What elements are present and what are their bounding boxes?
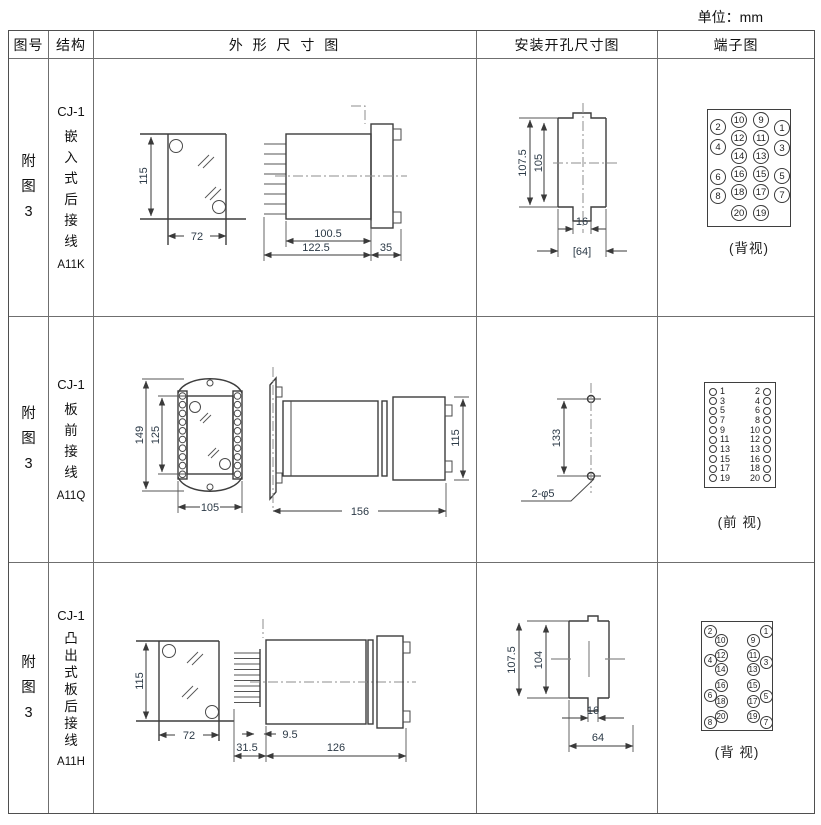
terminal-pin: 7 (774, 187, 790, 203)
dim-label-front-height: 115 (134, 672, 146, 690)
terminal-pin (709, 416, 717, 424)
tab (403, 711, 410, 722)
terminal-pin: 9 (747, 634, 760, 647)
pin-number: 5 (717, 406, 740, 415)
terminal-pin: 17 (753, 184, 769, 200)
dimensions-r1-outline: 115 72 100.5 122.5 35 (138, 137, 401, 261)
terminal-pin: 18 (731, 184, 747, 200)
model-code-r1: A11K (57, 259, 84, 271)
outline-cell-r3: 115 72 9.5 31.5 126 (94, 563, 477, 813)
terminal-pin (763, 397, 771, 405)
terminal-pin (763, 436, 771, 444)
dim-label-front-width: 72 (183, 730, 195, 742)
dim-label-rear-height: 115 (450, 429, 462, 447)
model-code-r2: A11Q (57, 490, 86, 502)
terminal-pin (709, 455, 717, 463)
side-view (264, 106, 407, 228)
mounting-cell-r2: 133 2-φ5 (477, 317, 658, 563)
header-outline: 外 形 尺 寸 图 (94, 31, 477, 59)
dim-label-body-length: 100.5 (314, 228, 342, 240)
screw-hole (213, 201, 226, 214)
dim-label-inner-height: 104 (533, 651, 545, 669)
terminal-pin (709, 388, 717, 396)
mounting-drawing-r2: 133 2-φ5 (477, 317, 657, 562)
glass-hatch (200, 413, 219, 458)
dimensions-r2-outline: 149 125 105 115 156 (134, 379, 469, 518)
dim-label-cutout-width: 64 (592, 732, 604, 744)
tab (403, 642, 410, 653)
terminal-pin: 16 (715, 679, 728, 692)
terminal-caption-r3: (背 视) (701, 741, 773, 761)
unit-label: 单位：mm (698, 7, 763, 27)
terminal-pin: 15 (753, 166, 769, 182)
terminal-box-r3: 2 4 6 8 10 12 14 16 18 20 9 11 13 15 17 … (701, 621, 773, 731)
terminal-row: 910 (709, 426, 771, 435)
terminal-pin: 7 (760, 716, 773, 729)
terminal-row: 78 (709, 416, 771, 425)
terminal-pin: 3 (760, 656, 773, 669)
terminal-row: 1920 (709, 474, 771, 483)
dimensions-r3-outline: 115 72 9.5 31.5 126 (134, 643, 406, 762)
mounting-cell-r1: 107.5 105 16 [64] (477, 59, 658, 317)
terminal-pin (763, 407, 771, 415)
terminal-pin: 2 (704, 625, 717, 638)
model-name-r3: CJ-1 (57, 608, 84, 623)
relay-face (187, 396, 233, 474)
terminal-pin: 1 (774, 120, 790, 136)
mounting-drawing-r1: 107.5 105 16 [64] (477, 59, 657, 316)
structure-cell-r1: CJ-1 嵌 入 式 后 接 线 A11K (49, 59, 94, 317)
dim-label-outer-height: 107.5 (506, 646, 518, 674)
outline-cell-r1: 115 72 100.5 122.5 35 (94, 59, 477, 317)
pin-number: 6 (740, 406, 763, 415)
dim-label-cutout-width: [64] (573, 246, 591, 258)
terminal-pin: 4 (710, 139, 726, 155)
dim-label-total-length: 156 (351, 506, 369, 518)
structure-cell-r3: CJ-1 凸 出 式 板 后 接 线 A11H (49, 563, 94, 813)
pin-number: 16 (740, 455, 763, 464)
model-code-r3: A11H (57, 756, 85, 768)
terminal-pin: 1 (760, 625, 773, 638)
pin-number: 12 (740, 435, 763, 444)
terminal-pin: 13 (753, 148, 769, 164)
mount-hole (207, 380, 213, 386)
dim-label-front-width: 105 (201, 502, 219, 514)
terminal-caption-r1: (背视) (707, 237, 791, 257)
tab (445, 461, 452, 472)
centerline (275, 106, 407, 176)
terminal-row: 56 (709, 406, 771, 415)
structure-text-r3: 凸 出 式 板 后 接 线 (64, 630, 78, 749)
terminal-pin (763, 416, 771, 424)
terminal-box-r1: 2 4 6 8 10 12 14 16 18 20 9 11 13 15 17 … (707, 109, 791, 227)
header-fig-no: 图号 (9, 31, 49, 59)
pin-number: 13 (717, 445, 740, 454)
terminal-pin: 16 (731, 166, 747, 182)
dimensions-r2-mounting: 133 2-φ5 (521, 399, 594, 501)
terminal-screws (179, 393, 241, 478)
dim-label-hole-distance: 133 (551, 429, 563, 447)
terminal-pin: 19 (747, 710, 760, 723)
tab (445, 405, 452, 416)
dim-label-slot-width: 16 (576, 216, 588, 228)
terminal-row: 1112 (709, 435, 771, 444)
rear-cover (393, 397, 445, 480)
datasheet-page: 单位：mm 图号 结构 外 形 尺 寸 图 安装开孔尺寸图 端子图 附 图 3 … (0, 0, 821, 825)
dim-label-inner-height: 125 (150, 426, 162, 444)
terminal-pin: 14 (715, 663, 728, 676)
terminal-pin: 14 (731, 148, 747, 164)
terminal-pin (763, 455, 771, 463)
pin-number: 3 (717, 397, 740, 406)
glass-hatch (198, 155, 221, 200)
terminal-pin: 12 (715, 649, 728, 662)
terminal-cell-r3: 2 4 6 8 10 12 14 16 18 20 9 11 13 15 17 … (658, 563, 814, 813)
pin-number: 18 (740, 464, 763, 473)
terminal-pin (763, 426, 771, 434)
mounting-cell-r3: 107.5 104 16 64 (477, 563, 658, 813)
centerline (553, 103, 617, 233)
fig-no-r2: 附 图 3 (21, 402, 36, 477)
terminal-pin: 10 (715, 634, 728, 647)
terminal-pins (234, 653, 260, 703)
terminal-pin: 20 (715, 710, 728, 723)
terminal-box-r2: 12 34 56 78 910 1112 1313 1516 1718 1920 (704, 382, 776, 488)
terminal-pin (763, 465, 771, 473)
structure-text-r2: 板 前 接 线 (64, 399, 78, 483)
terminal-pins (264, 144, 286, 214)
dim-label-front-height: 115 (138, 167, 150, 185)
dim-label-front-width: 72 (191, 231, 203, 243)
terminal-row: 1313 (709, 445, 771, 454)
terminal-pin (709, 474, 717, 482)
terminal-pin: 12 (731, 130, 747, 146)
terminal-cell-r2: 12 34 56 78 910 1112 1313 1516 1718 1920… (658, 317, 814, 563)
tab (393, 212, 401, 223)
dim-label-slot-width: 16 (587, 705, 599, 717)
screw-hole (220, 459, 231, 470)
terminal-pin: 11 (747, 649, 760, 662)
screw-hole (170, 140, 183, 153)
dim-label-pins-length: 31.5 (236, 742, 257, 754)
front-view (136, 641, 234, 741)
terminal-pin (709, 436, 717, 444)
terminal-pin (763, 445, 771, 453)
terminal-pin: 2 (710, 119, 726, 135)
side-view (270, 367, 452, 509)
dim-label-total-length: 122.5 (302, 242, 330, 254)
outline-drawing-r2: 149 125 105 115 156 (94, 317, 476, 562)
pin-number: 7 (717, 416, 740, 425)
dimension-table: 图号 结构 外 形 尺 寸 图 安装开孔尺寸图 端子图 附 图 3 CJ-1 嵌… (8, 30, 815, 814)
terminal-pin: 10 (731, 112, 747, 128)
terminal-row: 12 (709, 387, 771, 396)
terminal-pin (709, 465, 717, 473)
structure-text-r1: 嵌 入 式 后 接 线 (64, 126, 78, 252)
terminal-pin: 13 (747, 663, 760, 676)
pin-number: 9 (717, 426, 740, 435)
dim-label-outer-height: 149 (134, 426, 146, 444)
centerline (250, 619, 416, 682)
tab (393, 129, 401, 140)
terminal-pin: 19 (753, 205, 769, 221)
pin-number: 17 (717, 464, 740, 473)
header-mounting: 安装开孔尺寸图 (477, 31, 658, 59)
structure-cell-r2: CJ-1 板 前 接 线 A11Q (49, 317, 94, 563)
terminal-caption-r2: (前 视) (704, 511, 776, 531)
terminal-pin: 8 (710, 188, 726, 204)
terminal-pin: 9 (753, 112, 769, 128)
pin-number: 10 (740, 426, 763, 435)
pin-number: 1 (717, 387, 740, 396)
outline-drawing-r1: 115 72 100.5 122.5 35 (94, 59, 476, 316)
terminal-pin: 17 (747, 695, 760, 708)
glass-hatch (182, 652, 203, 699)
screw-hole (190, 402, 201, 413)
terminal-pin: 18 (715, 695, 728, 708)
pin-number: 13 (740, 445, 763, 454)
terminal-pin: 5 (760, 690, 773, 703)
mount-hole (207, 484, 213, 490)
terminal-pin (709, 426, 717, 434)
pin-number: 2 (740, 387, 763, 396)
front-view (178, 379, 242, 492)
pin-number: 15 (717, 455, 740, 464)
dim-label-holes: 2-φ5 (531, 488, 554, 500)
dim-label-gap: 9.5 (282, 729, 297, 741)
fig-no-cell-r1: 附 图 3 (9, 59, 49, 317)
outline-drawing-r3: 115 72 9.5 31.5 126 (94, 563, 476, 812)
terminal-pin: 15 (747, 679, 760, 692)
terminal-pin: 5 (774, 168, 790, 184)
header-terminal: 端子图 (658, 31, 814, 59)
outline-cell-r2: 149 125 105 115 156 (94, 317, 477, 563)
screw-hole (163, 645, 176, 658)
dimensions-r1-mounting: 107.5 105 16 [64] (517, 120, 627, 258)
fig-no-cell-r2: 附 图 3 (9, 317, 49, 563)
pin-number: 8 (740, 416, 763, 425)
side-view (234, 619, 416, 728)
terminal-pin: 6 (710, 169, 726, 185)
dim-label-inner-height: 105 (533, 154, 545, 172)
fig-no-cell-r3: 附 图 3 (9, 563, 49, 813)
pin-number: 20 (740, 474, 763, 483)
relay-body (283, 401, 378, 476)
model-name-r2: CJ-1 (57, 377, 84, 392)
front-view (140, 134, 246, 245)
terminal-row: 34 (709, 397, 771, 406)
pin-number: 19 (717, 474, 740, 483)
terminal-pin: 3 (774, 140, 790, 156)
terminal-row: 1718 (709, 464, 771, 473)
fig-no-r3: 附 图 3 (21, 651, 36, 726)
center-marks (551, 641, 625, 677)
header-structure: 结构 (49, 31, 94, 59)
dim-label-body-length: 126 (327, 742, 345, 754)
terminal-pin: 20 (731, 205, 747, 221)
model-name-r1: CJ-1 (57, 104, 84, 119)
terminal-pin (709, 445, 717, 453)
fig-no-r1: 附 图 3 (21, 150, 36, 225)
terminal-row: 1516 (709, 455, 771, 464)
terminal-cell-r1: 2 4 6 8 10 12 14 16 18 20 9 11 13 15 17 … (658, 59, 814, 317)
screw-hole (206, 706, 219, 719)
terminal-pin: 11 (753, 130, 769, 146)
terminal-pin (709, 397, 717, 405)
terminal-pin (763, 388, 771, 396)
pin-number: 4 (740, 397, 763, 406)
mount-holes (581, 383, 601, 493)
mounting-drawing-r3: 107.5 104 16 64 (477, 563, 657, 812)
pin-number: 11 (717, 435, 740, 444)
dim-label-flange: 35 (380, 242, 392, 254)
dim-label-outer-height: 107.5 (517, 149, 529, 177)
terminal-pin (763, 474, 771, 482)
terminal-pin (709, 407, 717, 415)
